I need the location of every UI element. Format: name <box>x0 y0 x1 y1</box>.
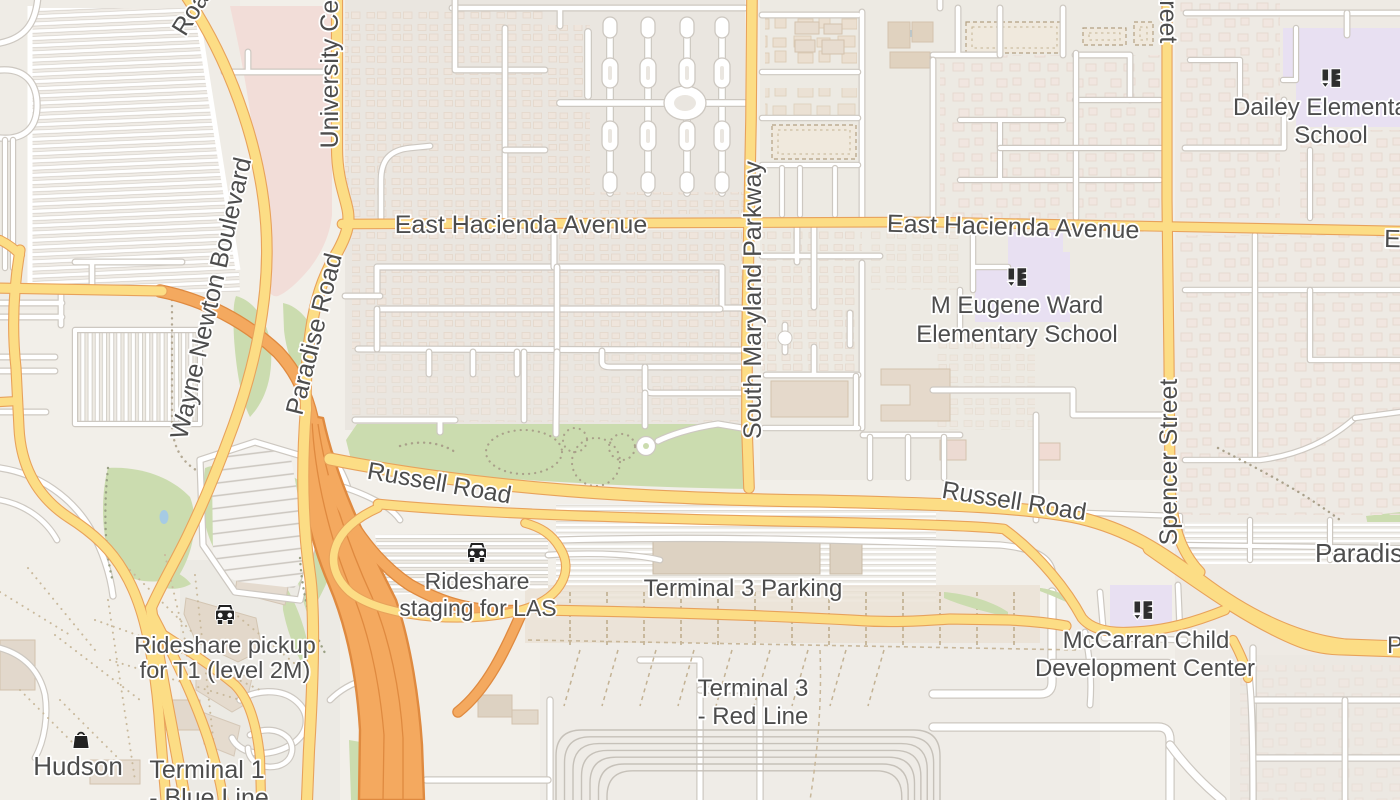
svg-text:Hudson: Hudson <box>33 751 123 781</box>
svg-text:School: School <box>1294 122 1367 149</box>
svg-text:Development Center: Development Center <box>1035 655 1255 682</box>
svg-text:Rideshare: Rideshare <box>425 568 530 594</box>
svg-text:- Red Line: - Red Line <box>698 703 809 730</box>
svg-text:Spencer Street: Spencer Street <box>1154 0 1182 43</box>
svg-text:Paradise: Paradise <box>1315 538 1400 568</box>
svg-text:Dailey Elementary: Dailey Elementary <box>1233 94 1400 121</box>
svg-text:Terminal 3: Terminal 3 <box>698 675 809 702</box>
svg-text:Terminal 3 Parking: Terminal 3 Parking <box>644 575 843 602</box>
svg-text:Spencer Street: Spencer Street <box>1155 379 1183 546</box>
svg-text:South Maryland Parkway: South Maryland Parkway <box>739 161 767 439</box>
svg-text:for T1 (level 2M): for T1 (level 2M) <box>140 657 311 683</box>
svg-text:McCarran Child: McCarran Child <box>1063 627 1230 654</box>
svg-text:University Center D: University Center D <box>316 0 344 148</box>
svg-text:East Hacienda Avenue: East Hacienda Avenue <box>395 211 648 239</box>
svg-text:- Blue Line: - Blue Line <box>149 784 269 800</box>
svg-text:staging for LAS: staging for LAS <box>399 595 556 621</box>
svg-text:M Eugene Ward: M Eugene Ward <box>931 292 1104 319</box>
svg-text:Elementary School: Elementary School <box>916 321 1117 348</box>
svg-text:Terminal 1: Terminal 1 <box>149 756 264 784</box>
svg-text:Rideshare pickup: Rideshare pickup <box>134 632 316 658</box>
svg-text:Paradise Ro: Paradise Ro <box>1387 632 1400 659</box>
svg-text:East Hac: East Hac <box>1384 225 1400 255</box>
